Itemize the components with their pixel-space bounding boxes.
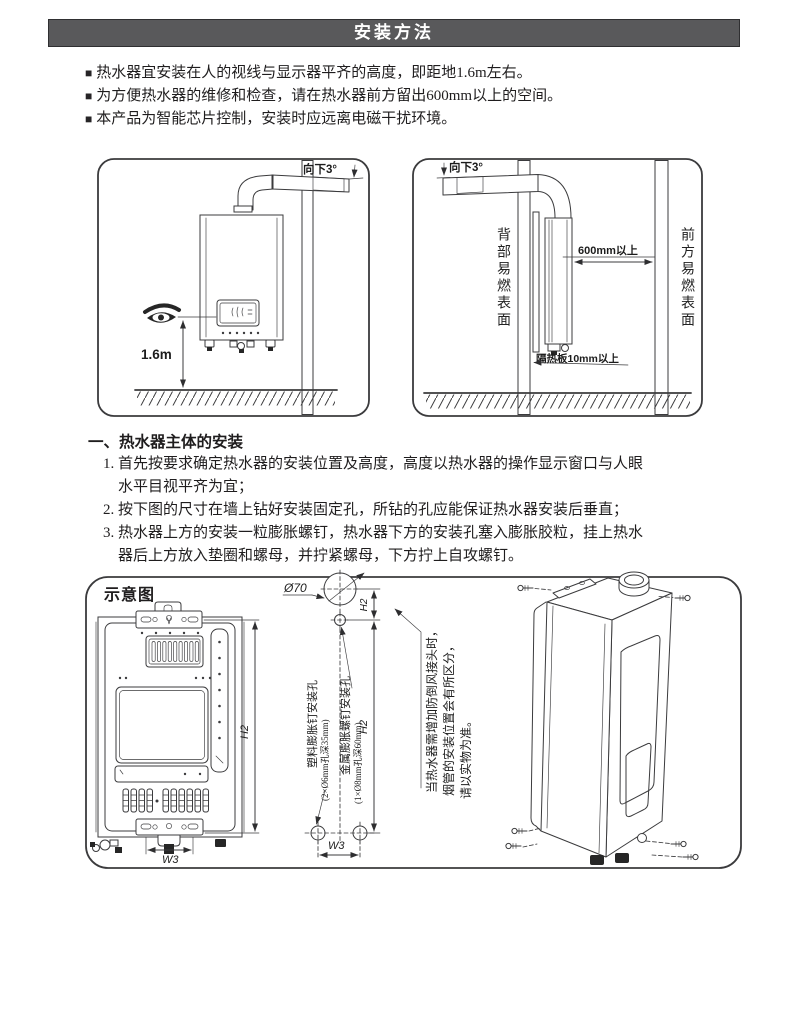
schematic-title: 示意图 — [104, 581, 155, 605]
metal-hole-label: 金属膨胀螺钉安装孔 — [338, 676, 352, 775]
figure-clearances: 向下3° 600mm以上 隔热板10mm以上 — [412, 158, 703, 417]
figure-mounting-height: 向下3° 1.6m — [97, 158, 370, 417]
bullet-note: ■本产品为智能芯片控制，安装时应远离电磁干扰环境。 — [85, 108, 456, 131]
front-clearance-dimension: 600mm以上 — [563, 243, 655, 262]
note-line: 请以实物为准。 — [458, 715, 473, 799]
bullet-note: ■为方便热水器的维修和检查，请在热水器前方留出600mm以上的空间。 — [85, 85, 562, 108]
step-number: 2. — [103, 499, 118, 522]
step-text: 首先按要求确定热水器的安装位置及高度，高度以热水器的操作显示窗口与人眼 水平目视… — [118, 453, 693, 499]
heater-3d-view — [506, 572, 698, 865]
rear-brick-wall — [518, 161, 530, 415]
square-bullet-icon: ■ — [85, 112, 92, 126]
insulation-board-label: 隔热板10mm以上 — [534, 352, 628, 365]
flue-pipe — [234, 165, 363, 212]
floor — [135, 390, 337, 406]
square-bullet-icon: ■ — [85, 89, 92, 103]
bullet-text: 本产品为智能芯片控制，安装时应远离电磁干扰环境。 — [96, 111, 456, 127]
square-bullet-icon: ■ — [85, 66, 92, 80]
water-heater-side — [545, 218, 572, 355]
brick-wall — [302, 161, 313, 415]
note-line: 当热水器需增加防倒风接头时， — [424, 625, 439, 793]
note-line: 烟管的安装位置会有所区分， — [441, 640, 456, 796]
front-width-dim: W3 — [162, 854, 179, 866]
section-heading: 一、热水器主体的安装 — [88, 430, 243, 452]
bullet-text: 为方便热水器的维修和检查，请在热水器前方留出600mm以上的空间。 — [96, 88, 562, 104]
manual-page: 安装方法 ■热水器宜安装在人的视线与显示器平齐的高度，即距地1.6m左右。 ■为… — [0, 0, 790, 1016]
eye-icon — [145, 305, 179, 322]
front-surface-label: 前方易燃表面 — [676, 227, 696, 329]
heater-front-elevation: H2 W3 — [90, 602, 259, 866]
hole-width-dim: W3 — [328, 840, 345, 852]
front-brick-wall — [655, 161, 668, 415]
step-number: 1. — [103, 453, 118, 476]
plastic-hole-spec: (2×Ø6mm孔深35mm) — [320, 719, 330, 801]
angle-label: 向下3° — [449, 160, 483, 174]
clearance-value: 600mm以上 — [578, 243, 638, 257]
height-value: 1.6m — [141, 347, 172, 362]
drilling-template: Ø70 H2 H2 W3 塑料膨胀钉安装孔 (2×Ø6mm孔深35mm) 金 — [283, 570, 380, 859]
angle-label: 向下3° — [303, 162, 337, 176]
flue-diameter-label: Ø70 — [283, 581, 307, 595]
figure-schematic: H2 W3 Ø70 H2 H2 — [85, 560, 742, 880]
plastic-hole-label: 塑料膨胀钉安装孔 — [305, 680, 319, 768]
flue-offset-dim: H2 — [359, 598, 370, 611]
front-height-dim: H2 — [239, 725, 251, 739]
insulation-board — [533, 212, 539, 352]
step-text: 按下图的尺寸在墙上钻好安装固定孔，所钻的孔应能保证热水器安装后垂直； — [118, 499, 693, 522]
bullet-text: 热水器宜安装在人的视线与显示器平齐的高度，即距地1.6m左右。 — [96, 65, 531, 81]
step-number: 3. — [103, 522, 118, 545]
step-item: 1.首先按要求确定热水器的安装位置及高度，高度以热水器的操作显示窗口与人眼 水平… — [103, 453, 693, 499]
floor — [424, 393, 691, 409]
metal-hole-spec: (1×Ø8mm孔深60mm) — [353, 722, 363, 804]
rear-surface-label: 背部易燃表面 — [492, 227, 512, 329]
step-item: 2.按下图的尺寸在墙上钻好安装固定孔，所钻的孔应能保证热水器安装后垂直； — [103, 499, 693, 522]
page-title: 安装方法 — [48, 19, 740, 47]
water-heater-front — [200, 215, 283, 353]
note-callout: 当热水器需增加防倒风接头时， 烟管的安装位置会有所区分， 请以实物为准。 — [395, 609, 473, 799]
height-dimension: 1.6m — [141, 321, 183, 387]
bullet-note: ■热水器宜安装在人的视线与显示器平齐的高度，即距地1.6m左右。 — [85, 62, 532, 85]
